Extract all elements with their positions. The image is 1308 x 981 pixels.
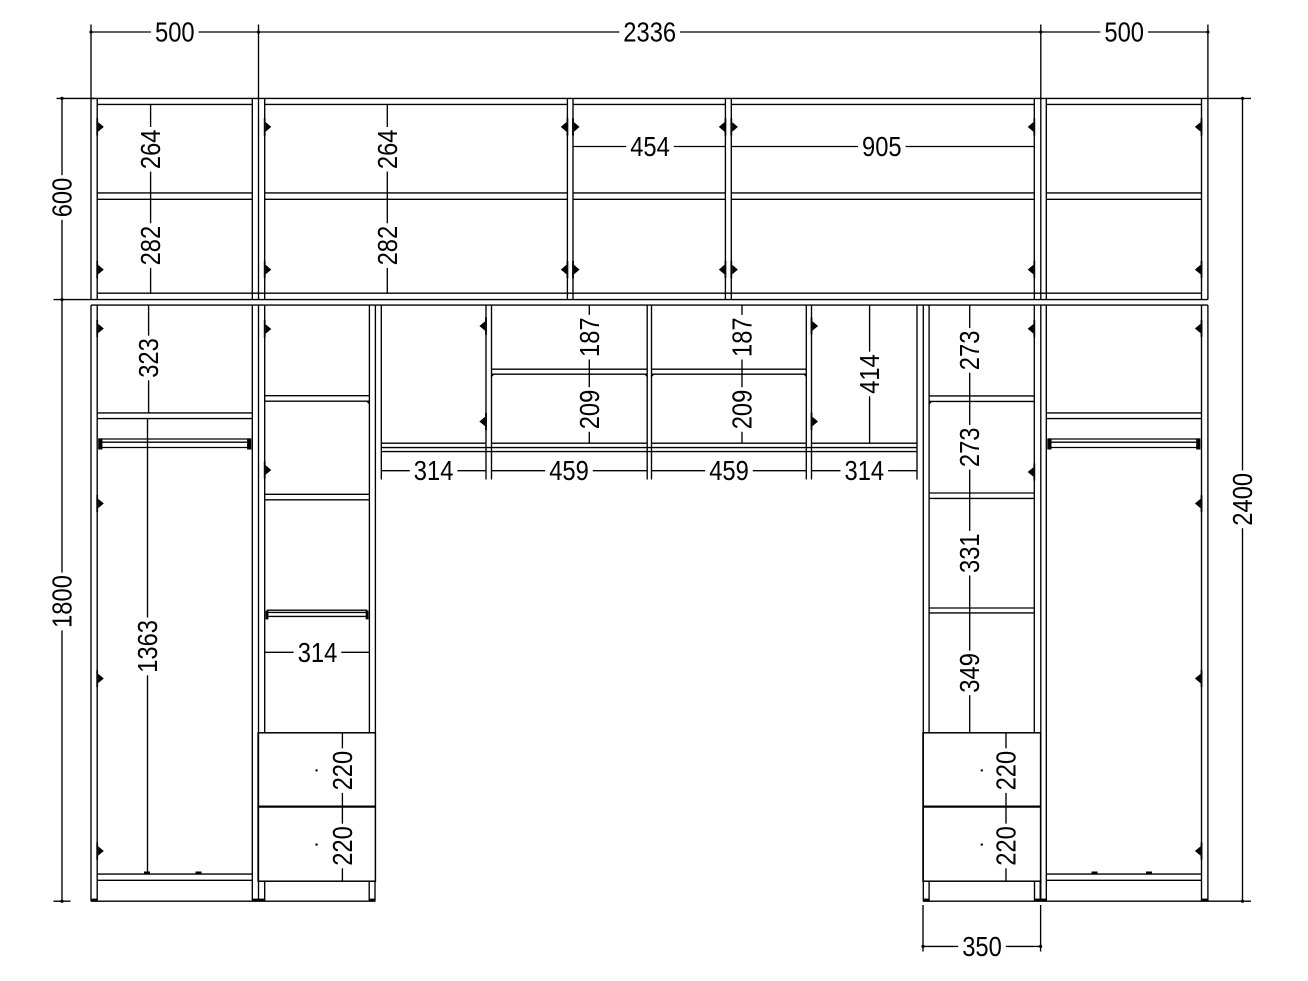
- svg-text:323: 323: [133, 338, 164, 378]
- svg-text:500: 500: [155, 17, 195, 48]
- svg-text:187: 187: [727, 317, 758, 357]
- svg-text:220: 220: [327, 826, 358, 866]
- svg-text:414: 414: [854, 354, 885, 394]
- svg-text:350: 350: [962, 931, 1002, 962]
- svg-text:2336: 2336: [623, 17, 676, 48]
- svg-text:2400: 2400: [1227, 473, 1258, 526]
- svg-text:220: 220: [327, 751, 358, 791]
- svg-text:314: 314: [414, 455, 454, 486]
- svg-text:500: 500: [1104, 17, 1144, 48]
- svg-text:331: 331: [954, 533, 985, 573]
- svg-text:264: 264: [135, 130, 166, 170]
- svg-text:282: 282: [135, 226, 166, 266]
- svg-text:187: 187: [574, 317, 605, 357]
- svg-text:454: 454: [630, 131, 670, 162]
- svg-text:600: 600: [47, 178, 78, 218]
- svg-text:282: 282: [372, 226, 403, 266]
- svg-text:349: 349: [954, 653, 985, 693]
- svg-text:1363: 1363: [132, 620, 163, 673]
- svg-text:1800: 1800: [47, 575, 78, 628]
- svg-text:209: 209: [727, 390, 758, 430]
- svg-text:220: 220: [991, 751, 1022, 791]
- svg-text:220: 220: [991, 826, 1022, 866]
- svg-text:459: 459: [709, 455, 749, 486]
- svg-text:905: 905: [862, 131, 902, 162]
- svg-text:273: 273: [954, 331, 985, 371]
- svg-text:209: 209: [574, 390, 605, 430]
- svg-text:459: 459: [549, 455, 589, 486]
- svg-text:273: 273: [954, 428, 985, 468]
- svg-text:314: 314: [845, 455, 885, 486]
- svg-text:314: 314: [298, 637, 338, 668]
- svg-text:264: 264: [372, 130, 403, 170]
